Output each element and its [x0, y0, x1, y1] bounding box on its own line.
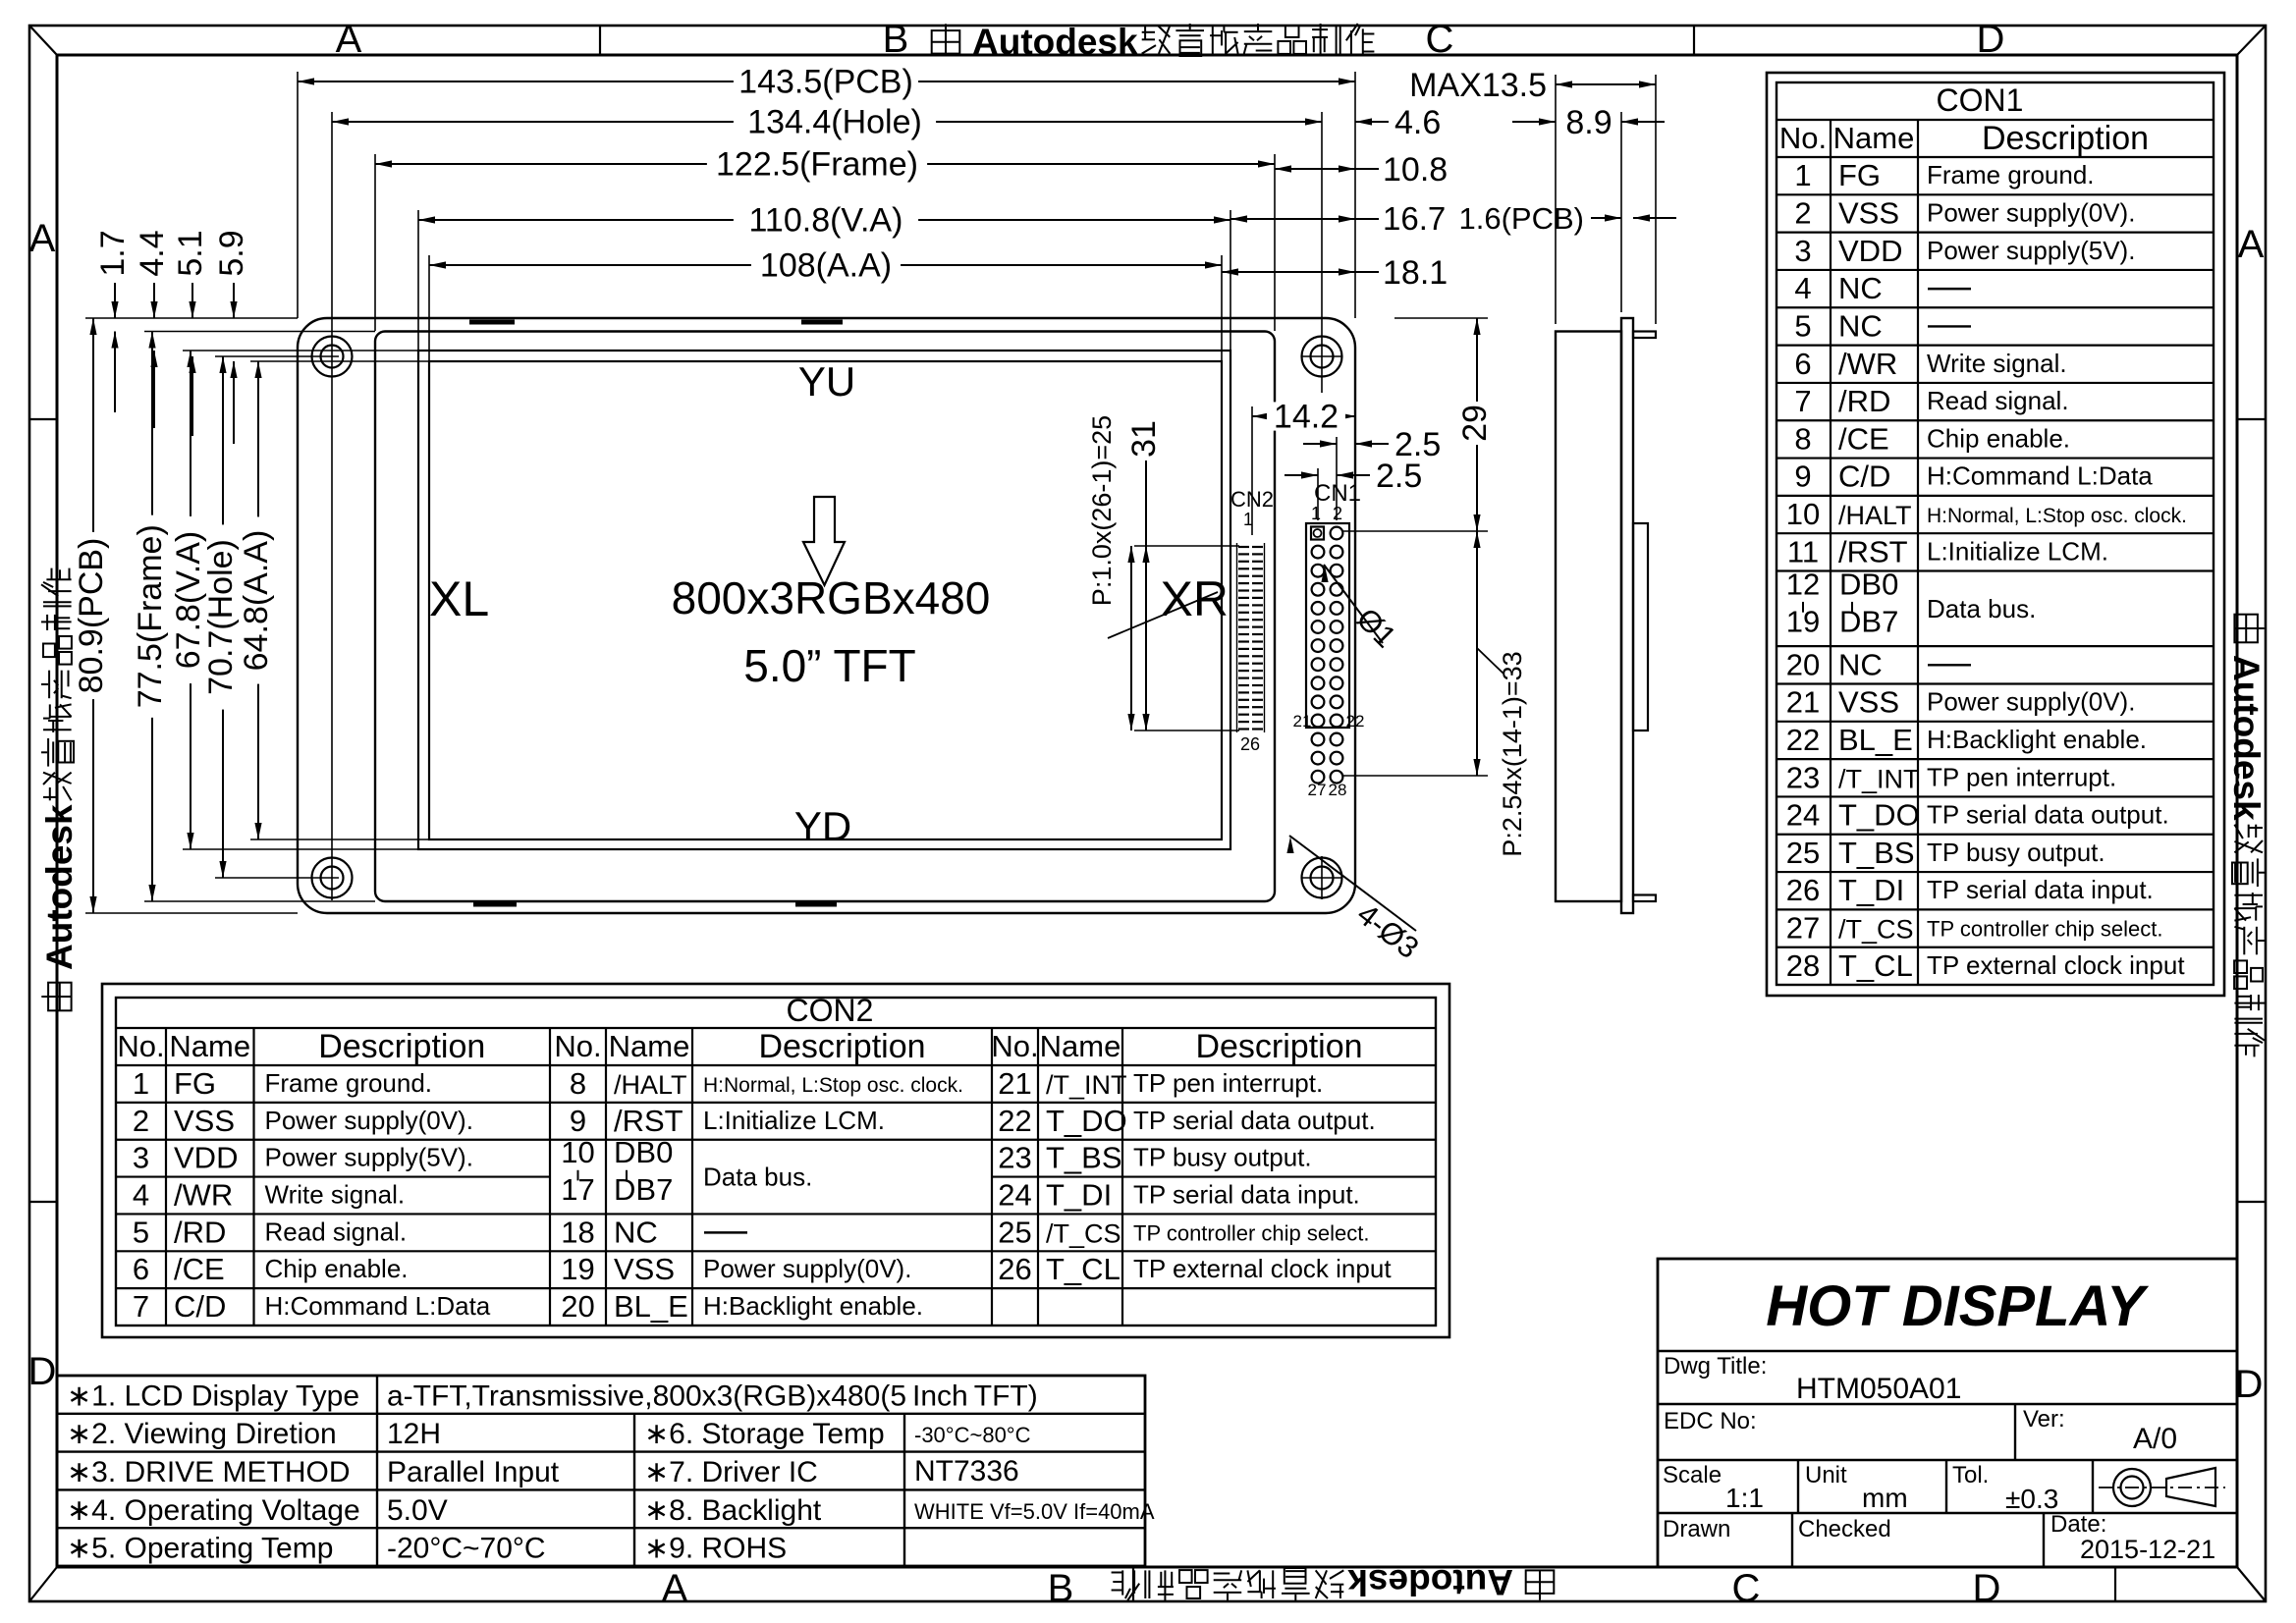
svg-text:MAX13.5: MAX13.5	[1409, 67, 1547, 104]
svg-text:77.5(Frame): 77.5(Frame)	[132, 524, 169, 708]
svg-text:Power supply(0V).: Power supply(0V).	[703, 1254, 911, 1283]
svg-text:22: 22	[1346, 712, 1365, 730]
svg-text:B: B	[883, 18, 909, 61]
svg-text:Description: Description	[1195, 1028, 1362, 1065]
svg-text:T_DI: T_DI	[1838, 873, 1904, 907]
svg-text:No.: No.	[117, 1029, 164, 1063]
svg-text:25: 25	[998, 1215, 1031, 1249]
svg-text:2: 2	[1333, 504, 1342, 523]
svg-text:122.5(Frame): 122.5(Frame)	[716, 146, 918, 184]
svg-text:9: 9	[570, 1104, 586, 1138]
svg-text:L:Initialize LCM.: L:Initialize LCM.	[703, 1106, 885, 1135]
svg-text:FG: FG	[1838, 158, 1881, 192]
svg-text:1.6(PCB): 1.6(PCB)	[1459, 201, 1584, 236]
svg-text:Name: Name	[1040, 1029, 1121, 1063]
svg-text:5: 5	[133, 1215, 149, 1249]
svg-text:Name: Name	[1833, 121, 1915, 155]
svg-text:VSS: VSS	[1838, 195, 1899, 230]
svg-text:TP pen interrupt.: TP pen interrupt.	[1927, 762, 2116, 791]
svg-text:6: 6	[133, 1252, 149, 1286]
svg-text:NC: NC	[1838, 271, 1883, 305]
svg-text:/RST: /RST	[614, 1104, 683, 1138]
svg-text:26: 26	[1786, 873, 1820, 907]
svg-text:TP controller chip select.: TP controller chip select.	[1927, 917, 2162, 942]
svg-text:∗4. Operating Voltage: ∗4. Operating Voltage	[67, 1494, 360, 1527]
svg-text:22: 22	[998, 1104, 1031, 1138]
svg-text:Read signal.: Read signal.	[265, 1217, 408, 1246]
svg-text:VSS: VSS	[174, 1104, 235, 1138]
svg-text:8: 8	[1794, 421, 1811, 456]
svg-text:Drawn: Drawn	[1663, 1516, 1730, 1542]
svg-text:/RD: /RD	[174, 1215, 226, 1249]
svg-text:BL_E: BL_E	[1838, 723, 1913, 757]
svg-text:TP busy output.: TP busy output.	[1927, 838, 2105, 867]
svg-text:7: 7	[1794, 384, 1811, 418]
svg-text:/T_CS: /T_CS	[1046, 1218, 1121, 1248]
svg-text:XR: XR	[1161, 571, 1229, 626]
svg-text:28: 28	[1786, 948, 1820, 983]
svg-text:DB0: DB0	[1839, 567, 1898, 601]
svg-text:1:1: 1:1	[1725, 1483, 1764, 1513]
svg-text:No.: No.	[1779, 121, 1827, 155]
svg-text:Read signal.: Read signal.	[1927, 386, 2069, 415]
svg-text:27: 27	[1308, 781, 1327, 799]
svg-text:2015-12-21: 2015-12-21	[2080, 1535, 2215, 1564]
svg-text:Power supply(0V).: Power supply(0V).	[1927, 197, 2135, 227]
svg-text:Frame ground.: Frame ground.	[265, 1068, 433, 1098]
svg-text:8: 8	[570, 1066, 586, 1101]
svg-text:TP external clock input: TP external clock input	[1133, 1254, 1392, 1283]
svg-text:TP serial data output.: TP serial data output.	[1133, 1106, 1376, 1135]
svg-text:8.9: 8.9	[1565, 104, 1612, 141]
svg-text:VDD: VDD	[174, 1141, 238, 1175]
svg-text:800x3RGBx480: 800x3RGBx480	[672, 572, 991, 623]
svg-text:NC: NC	[1838, 308, 1883, 343]
svg-text:Data bus.: Data bus.	[1927, 594, 2036, 623]
svg-text:2: 2	[133, 1104, 149, 1138]
svg-text:mm: mm	[1862, 1483, 1908, 1513]
svg-text:/RD: /RD	[1838, 384, 1890, 418]
svg-text:Power supply(0V).: Power supply(0V).	[1927, 687, 2135, 717]
svg-text:TP busy output.: TP busy output.	[1133, 1143, 1312, 1172]
svg-text:9: 9	[1794, 460, 1811, 494]
svg-text:Autodesk: Autodesk	[2226, 655, 2267, 821]
svg-text:∗3. DRIVE METHOD: ∗3. DRIVE METHOD	[67, 1456, 351, 1488]
svg-text:Write signal.: Write signal.	[265, 1180, 406, 1210]
svg-text:/WR: /WR	[1838, 347, 1897, 381]
svg-text:Chip enable.: Chip enable.	[265, 1254, 409, 1283]
svg-text:Description: Description	[1982, 120, 2149, 157]
svg-text:CON1: CON1	[1937, 82, 2024, 118]
svg-text:∗1. LCD Display Type: ∗1. LCD Display Type	[67, 1380, 359, 1412]
svg-text:TP external clock input: TP external clock input	[1927, 950, 2185, 980]
svg-text:C/D: C/D	[1838, 460, 1890, 494]
svg-text:19: 19	[561, 1252, 594, 1286]
svg-text:/CE: /CE	[1838, 421, 1889, 456]
svg-text:4.4: 4.4	[134, 230, 171, 276]
svg-text:23: 23	[998, 1141, 1031, 1175]
svg-text:C: C	[1426, 18, 1454, 61]
svg-text:/T_CS: /T_CS	[1838, 915, 1914, 945]
svg-text:64.8(A.A): 64.8(A.A)	[238, 530, 275, 672]
svg-text:5.0V: 5.0V	[387, 1494, 448, 1527]
svg-text:TP serial data output.: TP serial data output.	[1927, 800, 2169, 830]
svg-text:10.8: 10.8	[1383, 151, 1448, 189]
svg-text:2.5: 2.5	[1376, 458, 1422, 495]
svg-text:D: D	[1973, 1567, 2001, 1610]
svg-text:YU: YU	[798, 358, 855, 405]
svg-text:Unit: Unit	[1805, 1462, 1847, 1488]
svg-text:/CE: /CE	[174, 1252, 225, 1286]
svg-text:24: 24	[998, 1178, 1031, 1213]
svg-text:12H: 12H	[387, 1418, 441, 1450]
svg-text:31: 31	[1125, 420, 1163, 458]
svg-text:P:1.0x(26-1)=25: P:1.0x(26-1)=25	[1087, 415, 1117, 606]
svg-text:28: 28	[1329, 781, 1347, 799]
svg-text:26: 26	[1240, 734, 1260, 754]
svg-text:DB0: DB0	[614, 1135, 673, 1169]
svg-text:NT7336: NT7336	[914, 1455, 1019, 1488]
svg-text:D: D	[1977, 18, 2005, 61]
svg-text:14.2: 14.2	[1274, 399, 1339, 436]
svg-text:Data bus.: Data bus.	[703, 1163, 812, 1192]
svg-text:H:Normal, L:Stop osc. clock.: H:Normal, L:Stop osc. clock.	[703, 1074, 963, 1097]
svg-text:Power supply(0V).: Power supply(0V).	[265, 1106, 473, 1135]
svg-text:TP pen interrupt.: TP pen interrupt.	[1133, 1068, 1323, 1098]
svg-text:CN1: CN1	[1314, 480, 1361, 507]
svg-text:DB7: DB7	[1839, 605, 1898, 639]
svg-text:3: 3	[133, 1141, 149, 1175]
svg-text:3: 3	[1794, 234, 1811, 268]
svg-text:/HALT: /HALT	[614, 1070, 687, 1100]
svg-text:Power supply(5V).: Power supply(5V).	[265, 1143, 473, 1172]
svg-text:Name: Name	[609, 1029, 690, 1063]
svg-text:VSS: VSS	[614, 1252, 675, 1286]
svg-text:2: 2	[1794, 195, 1811, 230]
svg-text:27: 27	[1786, 911, 1820, 946]
svg-text:∗5. Operating Temp: ∗5. Operating Temp	[67, 1533, 333, 1565]
svg-text:C: C	[1732, 1567, 1761, 1610]
svg-text:A: A	[29, 217, 56, 260]
svg-text:11: 11	[1787, 534, 1819, 568]
svg-text:H:Command L:Data: H:Command L:Data	[1927, 461, 2153, 491]
svg-text:Parallel Input: Parallel Input	[387, 1456, 560, 1488]
svg-text:21: 21	[1293, 712, 1312, 730]
svg-text:20: 20	[1786, 647, 1820, 681]
svg-text:Scale: Scale	[1663, 1462, 1722, 1488]
svg-text:5.1: 5.1	[172, 230, 209, 276]
svg-text:/WR: /WR	[174, 1178, 233, 1213]
svg-text:Write signal.: Write signal.	[1927, 349, 2067, 378]
svg-text:/HALT: /HALT	[1838, 501, 1912, 530]
svg-text:1: 1	[1794, 158, 1811, 192]
svg-text:Ver:: Ver:	[2023, 1406, 2065, 1433]
svg-text:H:Backlight enable.: H:Backlight enable.	[703, 1291, 923, 1321]
svg-text:20: 20	[561, 1289, 594, 1324]
svg-text:B: B	[1048, 1567, 1074, 1610]
svg-text:Name: Name	[169, 1029, 250, 1063]
svg-text:VSS: VSS	[1838, 685, 1899, 720]
svg-text:5.0” TFT: 5.0” TFT	[743, 640, 916, 691]
svg-text:H:Normal, L:Stop osc. clock.: H:Normal, L:Stop osc. clock.	[1927, 505, 2187, 527]
svg-text:NC: NC	[614, 1215, 658, 1249]
svg-text:A: A	[2238, 223, 2265, 266]
svg-text:EDC No:: EDC No:	[1664, 1408, 1757, 1434]
svg-text:6: 6	[1794, 347, 1811, 381]
svg-text:10: 10	[561, 1135, 594, 1169]
svg-text:-30°C~80°C: -30°C~80°C	[914, 1423, 1031, 1447]
svg-text:/RST: /RST	[1838, 534, 1908, 568]
svg-text:16.7: 16.7	[1383, 200, 1446, 237]
svg-text:23: 23	[1786, 760, 1820, 794]
svg-text:T_BS: T_BS	[1838, 836, 1915, 870]
svg-text:Checked: Checked	[1798, 1516, 1891, 1542]
svg-text:A: A	[336, 18, 362, 61]
svg-text:D: D	[28, 1350, 57, 1393]
svg-text:T_DI: T_DI	[1046, 1178, 1112, 1213]
svg-text:TP controller chip select.: TP controller chip select.	[1133, 1220, 1369, 1245]
svg-text:DB7: DB7	[614, 1172, 673, 1207]
svg-text:XL: XL	[429, 571, 489, 626]
svg-text:4: 4	[1794, 271, 1811, 305]
svg-text:BL_E: BL_E	[614, 1289, 688, 1324]
svg-text:Frame ground.: Frame ground.	[1927, 160, 2095, 189]
svg-text:T_CL: T_CL	[1046, 1252, 1121, 1286]
svg-text:70.7(Hole): 70.7(Hole)	[202, 539, 240, 695]
svg-text:∗2. Viewing Diretion: ∗2. Viewing Diretion	[67, 1418, 337, 1450]
svg-text:NC: NC	[1838, 647, 1883, 681]
svg-text:22: 22	[1786, 723, 1820, 757]
svg-text:21: 21	[1786, 685, 1820, 720]
svg-text:±0.3: ±0.3	[2005, 1484, 2058, 1514]
svg-text:a-TFT,Transmissive,800x3(RGB)x: a-TFT,Transmissive,800x3(RGB)x480(5 Inch…	[387, 1380, 1038, 1412]
svg-text:26: 26	[998, 1252, 1031, 1286]
svg-text:CON2: CON2	[787, 993, 874, 1028]
svg-text:5: 5	[1794, 308, 1811, 343]
svg-text:/T_INT: /T_INT	[1046, 1070, 1127, 1100]
svg-text:∗6. Storage Temp: ∗6. Storage Temp	[644, 1418, 885, 1450]
svg-text:Tol.: Tol.	[1952, 1462, 1989, 1488]
svg-text:No.: No.	[991, 1029, 1038, 1063]
svg-text:7: 7	[133, 1289, 149, 1324]
svg-text:P:2.54x(14-1)=33: P:2.54x(14-1)=33	[1498, 651, 1527, 856]
svg-text:1.7: 1.7	[94, 230, 132, 276]
svg-text:VDD: VDD	[1838, 234, 1902, 268]
svg-text:Description: Description	[758, 1028, 925, 1065]
svg-text:YD: YD	[794, 803, 851, 849]
svg-text:1: 1	[133, 1066, 149, 1101]
svg-text:4: 4	[133, 1178, 149, 1213]
svg-text:108(A.A): 108(A.A)	[760, 247, 892, 285]
svg-text:D: D	[2235, 1363, 2264, 1406]
svg-text:12: 12	[1786, 567, 1820, 601]
svg-text:5.9: 5.9	[213, 230, 250, 276]
svg-text:∗9. ROHS: ∗9. ROHS	[644, 1533, 787, 1565]
svg-text:29: 29	[1456, 405, 1494, 442]
svg-text:HOT DISPLAY: HOT DISPLAY	[1766, 1274, 2150, 1338]
svg-text:1: 1	[1311, 504, 1321, 523]
svg-text:A/0: A/0	[2133, 1423, 2177, 1455]
svg-text:Date:: Date:	[2050, 1511, 2106, 1538]
svg-text:H:Command L:Data: H:Command L:Data	[265, 1291, 491, 1321]
svg-text:-20°C~70°C: -20°C~70°C	[387, 1533, 546, 1565]
svg-text:143.5(PCB): 143.5(PCB)	[738, 64, 913, 101]
svg-text:T_BS: T_BS	[1046, 1141, 1122, 1175]
svg-text:18.1: 18.1	[1383, 254, 1448, 292]
svg-text:T_CL: T_CL	[1838, 948, 1913, 983]
svg-text:C/D: C/D	[174, 1289, 226, 1324]
svg-text:No.: No.	[554, 1029, 601, 1063]
svg-text:WHITE Vf=5.0V If=40mA: WHITE Vf=5.0V If=40mA	[914, 1499, 1155, 1524]
svg-text:110.8(V.A): 110.8(V.A)	[749, 202, 903, 240]
svg-text:Power supply(5V).: Power supply(5V).	[1927, 236, 2135, 265]
svg-text:134.4(Hole): 134.4(Hole)	[747, 104, 922, 141]
svg-text:H:Backlight enable.: H:Backlight enable.	[1927, 725, 2147, 754]
svg-text:18: 18	[561, 1215, 594, 1249]
svg-text:Autodesk: Autodesk	[972, 22, 1138, 62]
svg-text:∗7. Driver IC: ∗7. Driver IC	[644, 1456, 818, 1488]
svg-text:L:Initialize LCM.: L:Initialize LCM.	[1927, 536, 2108, 566]
svg-text:Chip enable.: Chip enable.	[1927, 423, 2070, 453]
svg-text:10: 10	[1786, 497, 1820, 531]
svg-text:Autodesk: Autodesk	[39, 804, 80, 970]
svg-text:T_DO: T_DO	[1838, 798, 1920, 833]
svg-text:Dwg Title:: Dwg Title:	[1664, 1353, 1767, 1380]
svg-text:HTM050A01: HTM050A01	[1796, 1373, 1961, 1405]
svg-text:80.9(PCB): 80.9(PCB)	[73, 538, 110, 694]
svg-text:TP serial data input.: TP serial data input.	[1927, 875, 2154, 904]
svg-text:Autodesk: Autodesk	[1347, 1562, 1513, 1602]
svg-text:/T_INT: /T_INT	[1838, 764, 1920, 793]
svg-text:Description: Description	[318, 1028, 485, 1065]
svg-text:TP serial data input.: TP serial data input.	[1133, 1180, 1360, 1210]
svg-text:4.6: 4.6	[1394, 104, 1441, 141]
svg-text:FG: FG	[174, 1066, 216, 1101]
svg-text:∗8. Backlight: ∗8. Backlight	[644, 1494, 822, 1527]
svg-text:24: 24	[1786, 798, 1820, 833]
svg-text:25: 25	[1786, 836, 1820, 870]
svg-text:21: 21	[998, 1066, 1031, 1101]
svg-text:A: A	[662, 1567, 688, 1610]
svg-text:T_DO: T_DO	[1046, 1104, 1127, 1138]
